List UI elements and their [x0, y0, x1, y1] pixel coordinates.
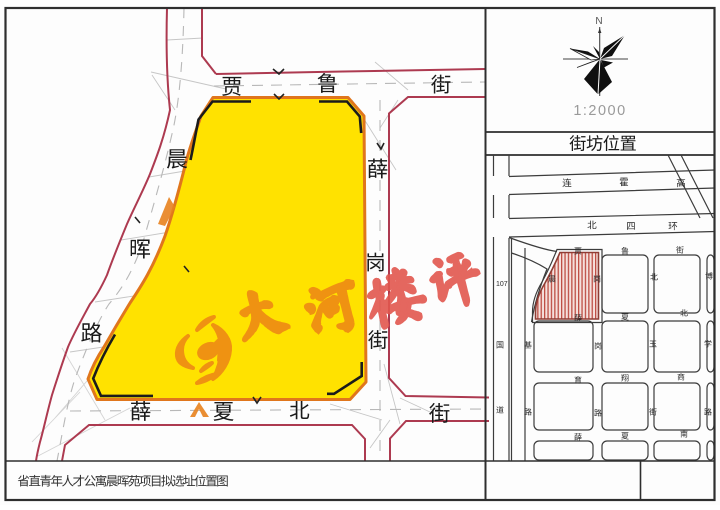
- svg-text:N: N: [595, 16, 602, 27]
- svg-text:1:2000: 1:2000: [573, 103, 626, 119]
- svg-text:107: 107: [496, 281, 508, 288]
